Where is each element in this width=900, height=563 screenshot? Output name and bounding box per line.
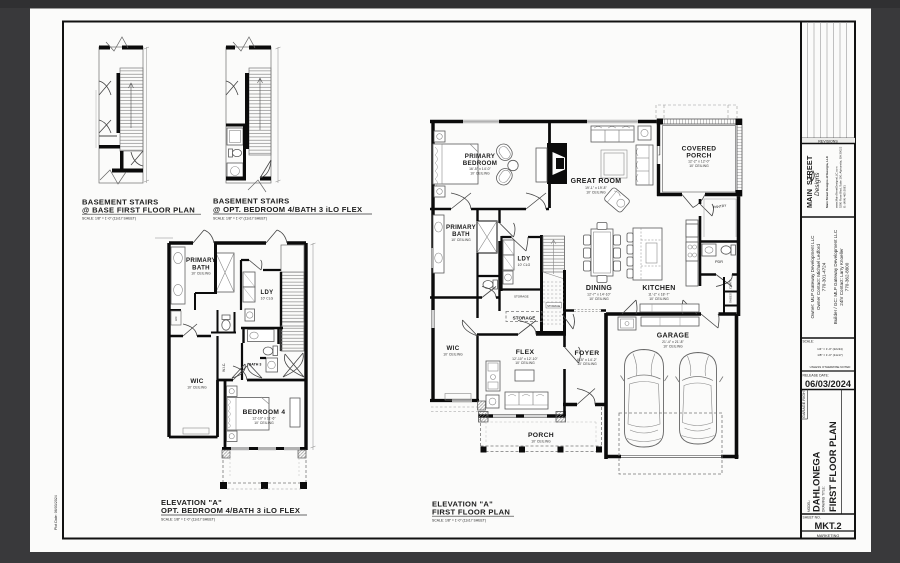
svg-text:770-362-8800: 770-362-8800 bbox=[845, 262, 850, 291]
svg-text:10' CEILING: 10' CEILING bbox=[589, 297, 609, 301]
svg-text:BATH: BATH bbox=[452, 231, 470, 238]
svg-text:FIRST FLOOR PLAN: FIRST FLOOR PLAN bbox=[432, 507, 510, 516]
svg-text:DRAWING TITLE:: DRAWING TITLE: bbox=[822, 486, 826, 512]
svg-text:PDR: PDR bbox=[715, 260, 723, 264]
svg-text:OPT. BEDROOM 4/BATH 3 iLO FLEX: OPT. BEDROOM 4/BATH 3 iLO FLEX bbox=[161, 506, 300, 515]
svg-text:STORAGE: STORAGE bbox=[547, 304, 560, 308]
svg-text:SCALE: 1/8" = 1'-0" (11x17 SHE: SCALE: 1/8" = 1'-0" (11x17 SHEET) bbox=[432, 519, 486, 523]
svg-text:PRIMARY: PRIMARY bbox=[186, 257, 216, 264]
svg-text:SHEET NO.: SHEET NO. bbox=[803, 516, 821, 520]
svg-text:PRIMARY: PRIMARY bbox=[465, 153, 496, 160]
svg-text:24hr Contact: Larry Knoeller: 24hr Contact: Larry Knoeller bbox=[839, 248, 844, 306]
svg-text:1/4" = 1'-0" (22x34): 1/4" = 1'-0" (22x34) bbox=[817, 347, 843, 351]
svg-text:770-301-4724: 770-301-4724 bbox=[822, 262, 827, 291]
svg-text:SCALE: 1/8" = 1'-0" (11x17 SHE: SCALE: 1/8" = 1'-0" (11x17 SHEET) bbox=[161, 518, 215, 522]
svg-text:10' CEILING: 10' CEILING bbox=[191, 272, 211, 276]
svg-text:10' CEILING: 10' CEILING bbox=[187, 386, 207, 390]
svg-text:10' CEILING: 10' CEILING bbox=[443, 353, 463, 357]
svg-text:06/03/2024: 06/03/2024 bbox=[805, 379, 852, 389]
svg-text:Main Street Designs of Georgia: Main Street Designs of Georgia, LLC bbox=[825, 155, 829, 208]
svg-text:10' CEILING: 10' CEILING bbox=[531, 440, 551, 444]
svg-text:MKT.2: MKT.2 bbox=[814, 520, 841, 531]
svg-text:GREAT ROOM: GREAT ROOM bbox=[571, 178, 622, 185]
svg-text:10' CEILING: 10' CEILING bbox=[586, 190, 606, 194]
svg-text:LIN: LIN bbox=[174, 317, 178, 321]
svg-text:MARKETING: MARKETING bbox=[817, 534, 840, 538]
svg-text:W.I.C.: W.I.C. bbox=[222, 363, 226, 372]
svg-text:10' CEILING: 10' CEILING bbox=[649, 297, 669, 301]
svg-text:@ BASE FIRST FLOOR PLAN: @ BASE FIRST FLOOR PLAN bbox=[82, 205, 195, 214]
svg-text:Builder / GC: MLP Gateway Dev: Builder / GC: MLP Gateway Development LL… bbox=[833, 229, 838, 324]
svg-text:GARAGE: GARAGE bbox=[657, 333, 690, 340]
svg-text:WIC: WIC bbox=[190, 378, 203, 385]
svg-text:10' CEILING: 10' CEILING bbox=[515, 361, 535, 365]
svg-text:PORCH: PORCH bbox=[528, 432, 554, 439]
svg-text:@ OPT. BEDROOM 4/BATH 3 iLO FL: @ OPT. BEDROOM 4/BATH 3 iLO FLEX bbox=[213, 205, 362, 214]
svg-text:SHOES: SHOES bbox=[729, 293, 733, 303]
svg-text:KITCHEN: KITCHEN bbox=[642, 285, 675, 292]
svg-text:RELEASE DATE:: RELEASE DATE: bbox=[803, 374, 829, 378]
svg-text:MAIN STREET: MAIN STREET bbox=[805, 155, 814, 208]
svg-text:SCALE: 1/8" = 1'-0" (11x17 SHE: SCALE: 1/8" = 1'-0" (11x17 SHEET) bbox=[213, 217, 267, 221]
svg-text:10' CEILING: 10' CEILING bbox=[470, 171, 490, 175]
svg-text:BEDROOM 4: BEDROOM 4 bbox=[243, 409, 286, 416]
svg-text:O: (404) 465-2081: O: (404) 465-2081 bbox=[843, 185, 847, 208]
svg-text:FOYER: FOYER bbox=[575, 350, 600, 357]
svg-text:Owner Contact: Michael Ledfor: Owner Contact: Michael Ledford bbox=[816, 244, 821, 310]
svg-text:DAHLONEGA: DAHLONEGA bbox=[811, 451, 822, 512]
svg-text:DINING: DINING bbox=[586, 285, 613, 292]
svg-text:10' CEILING: 10' CEILING bbox=[451, 238, 471, 242]
svg-text:PRIMARY: PRIMARY bbox=[446, 224, 476, 231]
svg-text:10' CEILING: 10' CEILING bbox=[254, 421, 274, 425]
svg-text:1/8" = 1'-0" (11x17): 1/8" = 1'-0" (11x17) bbox=[817, 353, 842, 357]
svg-text:BATH: BATH bbox=[192, 265, 210, 272]
svg-text:STORAGE: STORAGE bbox=[514, 295, 529, 299]
svg-text:BEDROOM: BEDROOM bbox=[463, 160, 497, 167]
svg-text:FIRST FLOOR PLAN: FIRST FLOOR PLAN bbox=[827, 421, 838, 512]
svg-text:10' CEILING: 10' CEILING bbox=[577, 362, 597, 366]
svg-text:SCALE:: SCALE: bbox=[803, 340, 814, 344]
svg-text:UNLESS OTHERWISE NOTED: UNLESS OTHERWISE NOTED bbox=[810, 365, 851, 369]
svg-text:10' CLG: 10' CLG bbox=[518, 263, 531, 267]
svg-text:REVISIONS: REVISIONS bbox=[818, 139, 838, 143]
svg-text:STORAGE: STORAGE bbox=[513, 315, 536, 320]
svg-text:COVERED: COVERED bbox=[682, 146, 717, 153]
svg-text:FLEX: FLEX bbox=[516, 349, 535, 356]
svg-text:LDY: LDY bbox=[261, 290, 274, 296]
svg-text:GARAGE RIGHT: GARAGE RIGHT bbox=[802, 388, 806, 418]
svg-text:WIC: WIC bbox=[447, 345, 460, 352]
svg-text:Plot Date: 06/03/2024: Plot Date: 06/03/2024 bbox=[54, 495, 58, 530]
svg-text:SCALE: 1/8" = 1'-0" (11x17 SHE: SCALE: 1/8" = 1'-0" (11x17 SHEET) bbox=[82, 217, 136, 221]
svg-text:10' CEILING: 10' CEILING bbox=[689, 164, 709, 168]
svg-text:Designs: Designs bbox=[814, 172, 821, 196]
svg-text:LDY: LDY bbox=[518, 257, 531, 263]
svg-text:10' CLG: 10' CLG bbox=[261, 297, 274, 301]
svg-text:COATS: COATS bbox=[729, 279, 733, 289]
svg-text:Owner: MLP Gateway Developmen: Owner: MLP Gateway Development LLC bbox=[810, 235, 815, 319]
svg-text:PORCH: PORCH bbox=[686, 153, 711, 160]
svg-text:10' CEILING: 10' CEILING bbox=[663, 344, 683, 348]
